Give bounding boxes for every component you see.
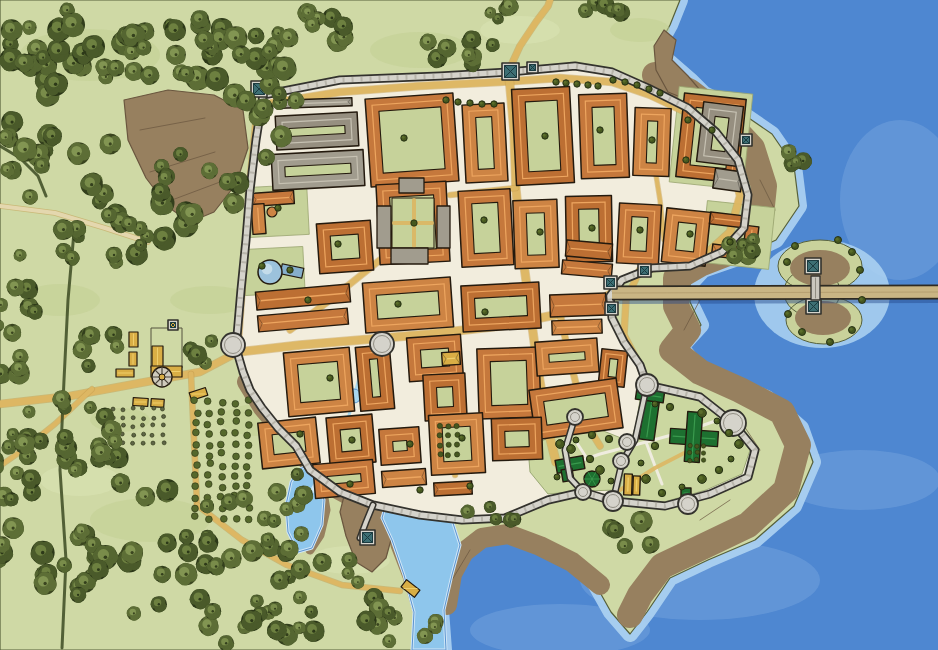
map-canvas bbox=[0, 0, 938, 650]
causeway-bridge bbox=[612, 292, 938, 302]
fantasy-city-map bbox=[0, 0, 938, 650]
